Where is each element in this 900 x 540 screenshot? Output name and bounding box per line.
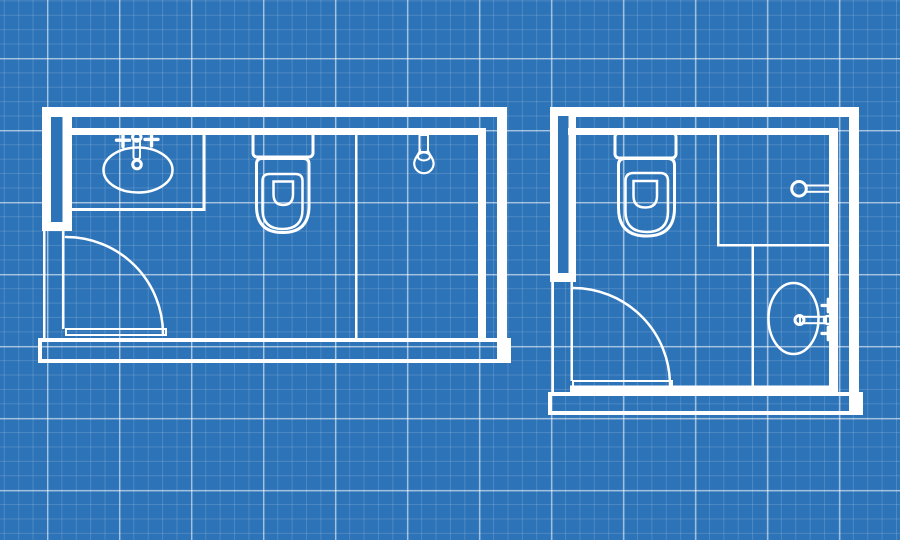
right-plan-outer-right-wall [849, 107, 859, 415]
door-leaf [573, 381, 672, 387]
sink-drain [133, 160, 142, 169]
counter-right-edge [203, 128, 206, 211]
door-leaf [66, 329, 166, 335]
partition-vertical-upper [717, 128, 720, 247]
sink-right [769, 283, 835, 354]
shower-head-joint [418, 153, 430, 161]
towel-bar-rail [806, 186, 830, 192]
right-plan-outer-left-wall-cavity [558, 116, 569, 273]
toilet-tank [615, 133, 676, 158]
door-left [66, 237, 166, 335]
towel-bar-right [792, 182, 830, 197]
door-swing-arc [66, 237, 163, 334]
partition-vertical-lower [752, 246, 755, 386]
left-plan-inner-right-wall [478, 128, 486, 342]
door-swing-arc [573, 288, 670, 385]
left-plan-bottom-wall [40, 340, 509, 361]
blueprint-canvas [0, 0, 900, 540]
floor-plans-drawing [0, 0, 900, 540]
shower-partition-line [355, 128, 358, 340]
faucet-base [824, 316, 832, 324]
toilet-opening [274, 182, 294, 206]
walls-left [40, 107, 509, 363]
faucet-handle-left-icon [117, 134, 130, 147]
left-plan-door-jamb-outer-line [43, 231, 46, 338]
shower-left [355, 128, 434, 340]
left-plan-outer-right-wall [497, 107, 507, 363]
toilet-opening [634, 181, 658, 208]
right-plan-door-jamb-outer-line [552, 282, 555, 392]
towel-bar-knob [792, 182, 807, 197]
toilet-left [253, 132, 313, 233]
sink-left [104, 133, 173, 193]
counter-front-edge [72, 208, 206, 211]
left-plan-outer-top-wall [42, 107, 507, 117]
floor-plan-left [40, 107, 509, 363]
partition-horizontal [717, 244, 838, 247]
right-plan-inner-right-wall [829, 128, 838, 392]
toilet-right [615, 133, 676, 236]
left-plan-door-jamb-inner-line [62, 231, 65, 329]
left-plan-outer-left-wall-cavity [51, 117, 63, 222]
walls-right [550, 107, 861, 415]
toilet-tank [253, 132, 313, 157]
door-right [573, 288, 672, 387]
faucet-base [133, 133, 141, 141]
right-plan-door-jamb-inner-line [571, 282, 574, 381]
right-plan-inner-top-wall [568, 128, 838, 135]
floor-plan-right [550, 107, 861, 415]
right-plan-outer-top-wall [550, 107, 859, 117]
sink-basin [769, 283, 819, 354]
right-plan-bottom-wall [550, 394, 861, 413]
